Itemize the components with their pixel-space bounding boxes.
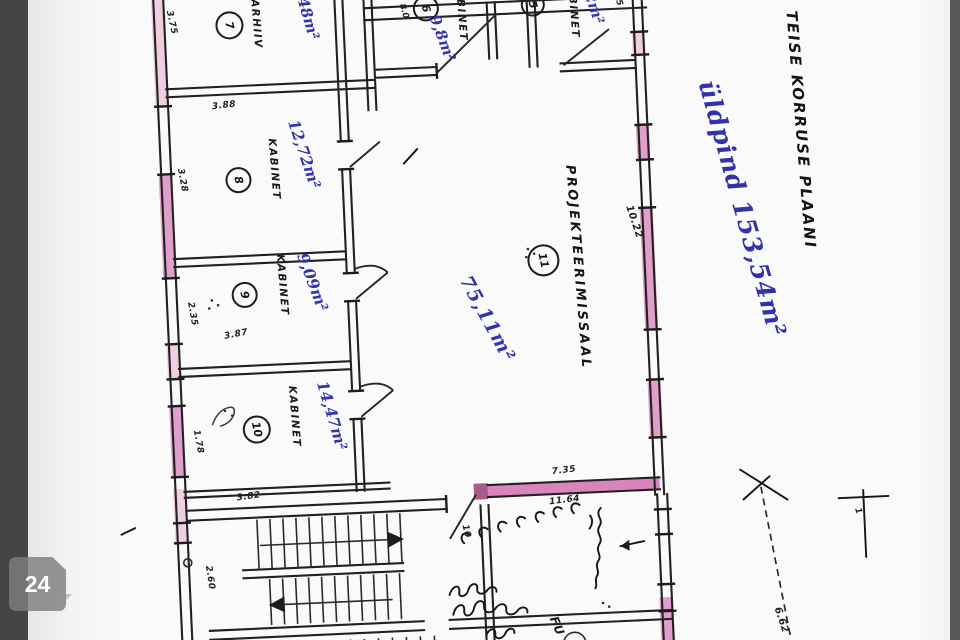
- hall-area: 75,11m²: [455, 272, 520, 366]
- dim-65: 65: [612, 0, 625, 7]
- dim-6-62: 6.62: [772, 606, 791, 635]
- room-8-area: 12,72m²: [284, 117, 325, 191]
- door-swings: [343, 9, 631, 542]
- dim-7-35: 7.35: [551, 464, 576, 477]
- outer-walls: [153, 0, 675, 640]
- dim-2-35: 2.35: [185, 301, 199, 327]
- hall-label: PROJEKTEERIMISSAAL: [562, 164, 593, 370]
- direction-arrow: [620, 540, 629, 551]
- room-5-label: KABINET: [565, 0, 582, 39]
- dim-3-88: 3.88: [211, 99, 236, 112]
- room-7-number: 7: [222, 20, 236, 31]
- photo-count: 24: [25, 571, 51, 598]
- plan-title: TEISE KORRUSE PLAANI: [782, 10, 819, 250]
- door-jamb: [473, 483, 488, 500]
- dim-2-60: 2.60: [203, 565, 217, 590]
- room-5-area: 2m²: [580, 0, 608, 27]
- room-5-number: 5: [526, 0, 540, 10]
- dim-mark-1: 1: [852, 506, 864, 515]
- room-6-label: KABINET: [453, 0, 470, 42]
- dim-1-78: 1.78: [191, 429, 205, 455]
- total-area-note: üldpind 153,54m²: [693, 77, 792, 341]
- room-8-label: KABINET: [266, 138, 283, 201]
- dim-3-82: 3.82: [236, 490, 261, 503]
- floorplan-drawing: 7 8 9 10 11 6 5 ARHIIV KABINET KABINET K…: [0, 0, 960, 640]
- partial-label: FU: [547, 614, 568, 638]
- room-8-number: 8: [231, 175, 245, 186]
- highlighted-walls: [150, 0, 674, 640]
- room-10-label: KABINET: [286, 385, 303, 448]
- exterior-dimension-marks: [740, 463, 895, 640]
- room-6-number: 6: [419, 3, 433, 14]
- room-7-label: ARHIIV: [248, 0, 264, 49]
- room-10-area: 14,47m²: [313, 378, 352, 452]
- room-9-label: KABINET: [274, 254, 291, 317]
- scanned-floorplan-photo: 7 8 9 10 11 6 5 ARHIIV KABINET KABINET K…: [0, 0, 960, 640]
- room-9-number: 9: [238, 290, 252, 301]
- room-6-area: 9,8m²: [426, 12, 460, 64]
- room-7-area: 48m²: [293, 0, 323, 42]
- dim-3-28: 3.28: [175, 168, 189, 194]
- dim-3-87: 3.87: [223, 328, 249, 342]
- hall-number: 11: [535, 251, 551, 269]
- room-10-number: 10: [249, 421, 265, 439]
- dim-11-64: 11.64: [549, 494, 581, 507]
- dim-3-75: 3.75: [164, 10, 179, 36]
